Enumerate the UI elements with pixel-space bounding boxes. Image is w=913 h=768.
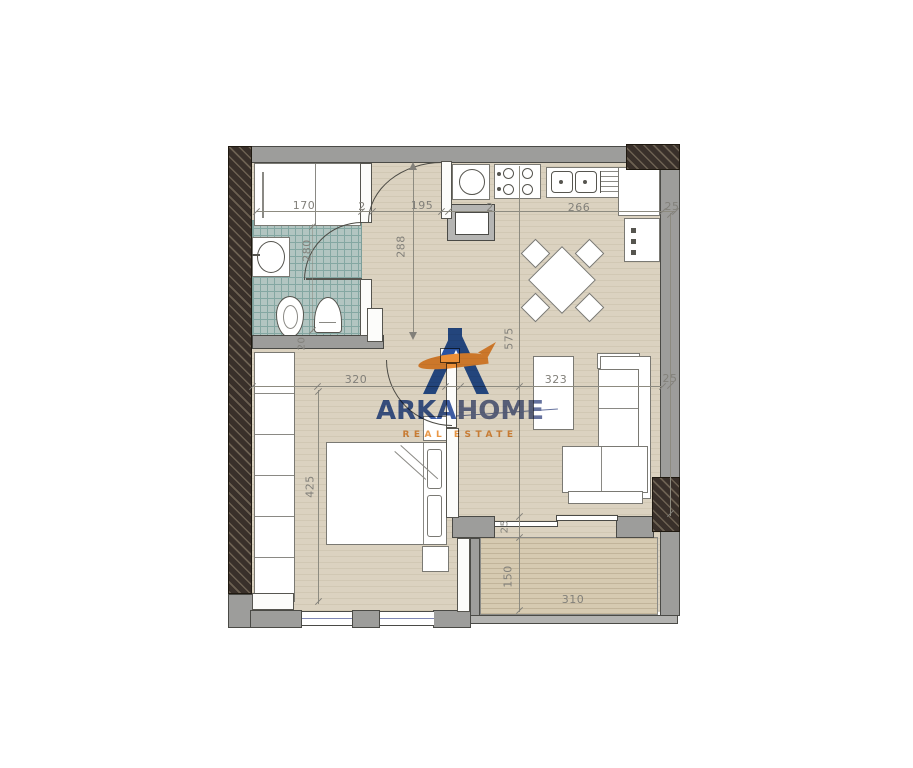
- wall-top: [250, 146, 680, 163]
- sofa-cushion-line: [599, 408, 638, 409]
- washbasin-bowl: [257, 241, 285, 273]
- wardrobe: [254, 352, 295, 602]
- dim-label-bath-depth: 280: [301, 234, 314, 268]
- dim-label-bath-wall: 20: [297, 334, 308, 354]
- sink-drainboard: [600, 171, 620, 193]
- kitchen-counter: [618, 167, 660, 216]
- pier-balcony-door-left: [452, 516, 495, 538]
- burner: [503, 184, 514, 195]
- washing-machine-drum: [459, 169, 485, 195]
- wall-bedroom-balcony: [457, 538, 470, 612]
- dim-label-kitchen-width: 266: [562, 201, 596, 214]
- dim-label-right-wall-mid: 25: [658, 372, 682, 385]
- toilet-bowl: [283, 305, 298, 329]
- column-right-mid: [652, 477, 680, 532]
- burner: [503, 168, 514, 179]
- dim-label-wall-b: 2: [478, 201, 502, 214]
- wall-notch-bottom-left: [252, 593, 294, 610]
- brand-tagline: REAL ESTATE: [370, 430, 550, 440]
- dim-label-bath-width: 170: [287, 199, 321, 212]
- kitchen-appliance-cabinet: [624, 218, 660, 262]
- washing-machine: [452, 164, 490, 200]
- stove: [494, 164, 541, 199]
- burner: [522, 168, 533, 179]
- kitchen-sink: [546, 167, 623, 198]
- burner: [522, 184, 533, 195]
- wall-bathroom-bottom: [252, 335, 384, 349]
- dim-label-balcony-door: 25: [500, 516, 511, 538]
- bed: [326, 442, 447, 545]
- brand-name-primary: ARKA: [376, 396, 456, 426]
- sofa-armrest-bottom: [568, 491, 643, 504]
- dim-label-bedroom-width: 320: [339, 373, 373, 386]
- bedroom-bench: [422, 546, 449, 572]
- bathtub: [254, 163, 361, 226]
- wall-bedroom-bottom-a: [250, 610, 302, 628]
- sofa-chaise: [562, 446, 648, 493]
- dim-label-bedroom-depth: 425: [304, 470, 317, 504]
- dim-label-hall-width: 195: [405, 199, 439, 212]
- pillow: [427, 495, 442, 537]
- sink-drain: [559, 180, 563, 184]
- pier-balcony-door-right: [616, 516, 654, 538]
- cabinet-dot: [631, 239, 636, 244]
- logo-orange-swoosh: [417, 350, 488, 372]
- brand-logo-icon: [420, 328, 492, 396]
- wall-left-structural: [228, 146, 252, 594]
- wall-bedroom-bottom-b: [433, 610, 471, 628]
- sofa-chaise-line: [601, 447, 602, 492]
- dim-label-wall-a: 2: [350, 200, 374, 213]
- stove-knob: [497, 172, 501, 176]
- sink-drain: [583, 180, 587, 184]
- window-glass-line: [302, 618, 352, 619]
- dim-label-hall-depth: 288: [395, 230, 408, 264]
- dim-label-right-wall-top: 25: [660, 200, 684, 213]
- dim-line-288: [413, 166, 414, 338]
- washbasin: [252, 237, 290, 277]
- cabinet-dot: [631, 250, 636, 255]
- pillow: [427, 449, 442, 489]
- bedroom-window-1: [302, 611, 352, 626]
- column-top-right: [626, 144, 680, 170]
- wall-balcony-left: [470, 538, 480, 616]
- dim-line-425: [318, 390, 319, 604]
- cabinet-dot: [631, 228, 636, 233]
- brand-watermark: ARKAHOME REAL ESTATE: [370, 326, 550, 448]
- sliding-door-panel-right: [556, 515, 618, 521]
- dim-label-balcony-depth: 150: [502, 560, 515, 594]
- dim-line-right: [670, 213, 671, 516]
- dim-label-balcony-width: 310: [556, 593, 590, 606]
- bed-pillow-divider: [423, 443, 424, 544]
- sofa-seats: [598, 369, 639, 450]
- bathroom-door-leaf: [306, 278, 362, 280]
- cabinet-front: [455, 212, 489, 235]
- wall-bedroom-bottom-pier: [352, 610, 380, 628]
- bidet-line: [319, 322, 336, 323]
- bathtub-divider: [315, 164, 316, 225]
- balcony-railing: [470, 615, 678, 624]
- window-glass-line: [380, 618, 434, 619]
- floorplan-canvas: 170 2 195 2 266 25 280 288 575 20 320 32…: [0, 0, 913, 768]
- stove-knob: [497, 187, 501, 191]
- bedroom-window-2: [380, 611, 434, 626]
